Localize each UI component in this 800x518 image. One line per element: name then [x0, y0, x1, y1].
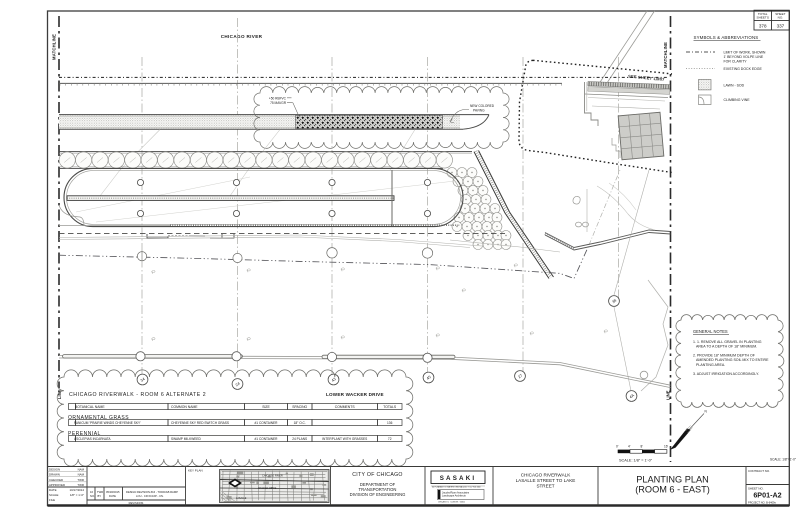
svg-text:EXISTING DOCK EDGE: EXISTING DOCK EDGE	[724, 67, 763, 71]
svg-text:CHEYENNE SKY RED SWITCH GRASS: CHEYENNE SKY RED SWITCH GRASS	[171, 421, 229, 425]
svg-text:COMMENTS: COMMENTS	[335, 405, 356, 409]
svg-text:18" O.C.: 18" O.C.	[294, 421, 306, 425]
svg-text:24 PLANS: 24 PLANS	[292, 437, 307, 441]
svg-text:16: 16	[90, 490, 93, 494]
svg-text:75 MAVGR: 75 MAVGR	[270, 101, 287, 105]
svg-text:SWAMP MILKWEED: SWAMP MILKWEED	[171, 437, 201, 441]
svg-text:136: 136	[387, 421, 393, 425]
svg-text:CLIMBING VINE: CLIMBING VINE	[724, 98, 751, 102]
svg-text:4': 4'	[628, 445, 631, 449]
svg-text:PANICUM 'PRAIRIE WINDS CHEYENN: PANICUM 'PRAIRIE WINDS CHEYENNE SKY'	[74, 421, 141, 425]
svg-text:72: 72	[388, 437, 392, 441]
svg-text:SYMBOLS & ABBREVIATIONS: SYMBOLS & ABBREVIATIONS	[694, 35, 759, 40]
svg-text:CITY OF CHICAGO: CITY OF CHICAGO	[352, 472, 403, 478]
svg-text:2. PROVIDE 18" MINIMUM DEPTH O: 2. PROVIDE 18" MINIMUM DEPTH OF	[693, 354, 756, 358]
svg-text:STREET: STREET	[536, 484, 554, 489]
svg-text:KEY PLAN: KEY PLAN	[188, 469, 203, 473]
svg-text:TWR: TWR	[77, 483, 84, 487]
svg-text:#1 CONTAINER: #1 CONTAINER	[255, 421, 279, 425]
svg-text:8': 8'	[641, 445, 644, 449]
svg-text:SCALE: 1/8" = 1'-0": SCALE: 1/8" = 1'-0"	[619, 459, 653, 463]
svg-text:NEW COLORED: NEW COLORED	[470, 104, 495, 108]
svg-text:DATE: DATE	[109, 494, 116, 498]
svg-text:CHICAGO RIVER: CHICAGO RIVER	[221, 34, 263, 39]
svg-text:16': 16'	[664, 445, 669, 449]
svg-text:1. 1. REMOVE ALL GRAVEL IN PLA: 1. 1. REMOVE ALL GRAVEL IN PLANTING	[693, 340, 762, 344]
svg-text:10/17/2014: 10/17/2014	[70, 488, 85, 492]
svg-text:6P01-A2: 6P01-A2	[753, 491, 781, 500]
svg-text:CHICAGO RIVERWALK - ROOM 6 ALT: CHICAGO RIVERWALK - ROOM 6 ALTERNATE 2	[69, 392, 206, 398]
svg-text:NAM: NAM	[78, 468, 85, 472]
svg-text:PLANTING PLAN: PLANTING PLAN	[636, 475, 709, 485]
svg-text:TWR: TWR	[77, 478, 84, 482]
svg-text:LOWER WACKER DRIVE: LOWER WACKER DRIVE	[326, 392, 384, 397]
svg-text:SHEETS: SHEETS	[757, 16, 769, 20]
svg-text:NO.: NO.	[90, 494, 95, 498]
svg-text:DRAWN: DRAWN	[49, 473, 60, 477]
svg-text:(ROOM 6 - EAST): (ROOM 6 - EAST)	[635, 485, 710, 495]
svg-text:CHICAGO IL ILLINOIS 60611: CHICAGO IL ILLINOIS 60611	[438, 500, 465, 503]
svg-text:MATCHLINE: MATCHLINE	[663, 42, 668, 68]
svg-text:1' BEYOND VOLPE LINE: 1' BEYOND VOLPE LINE	[724, 55, 764, 59]
svg-text:PROJECT NO. B-6409s: PROJECT NO. B-6409s	[748, 501, 776, 505]
svg-text:LOU - CR 6C16P - CN.: LOU - CR 6C16P - CN.	[136, 494, 164, 498]
svg-text:LIMIT OF WORK, SHOWN: LIMIT OF WORK, SHOWN	[724, 50, 766, 54]
svg-text:FOR CLARITY: FOR CLARITY	[724, 60, 748, 64]
svg-text:TWR: TWR	[97, 490, 103, 494]
svg-text:INTERPLANT WITH GRASSES: INTERPLANT WITH GRASSES	[322, 437, 367, 441]
svg-text:REVISIONS: REVISIONS	[129, 501, 144, 505]
svg-text:TOTALS: TOTALS	[383, 405, 397, 409]
svg-text:CHICAGO RIVER: CHICAGO RIVER	[262, 474, 283, 478]
svg-text:WACKER DRIVE: WACKER DRIVE	[258, 487, 277, 490]
svg-text:0': 0'	[616, 445, 619, 449]
svg-text:DIVISION OF ENGINEERING: DIVISION OF ENGINEERING	[350, 492, 406, 497]
svg-text:NO.: NO.	[778, 16, 784, 20]
svg-text:3. ADJUST IRRIGATION ACCORDING: 3. ADJUST IRRIGATION ACCORDINGLY.	[693, 372, 759, 376]
svg-text:337: 337	[777, 24, 785, 29]
svg-text:SCALE: SCALE	[49, 493, 59, 497]
svg-text:MATCHLINE: MATCHLINE	[52, 34, 57, 60]
svg-text:Landscape Architects: Landscape Architects	[442, 495, 467, 498]
svg-text:CONTRACT NO.: CONTRACT NO.	[748, 469, 770, 473]
svg-text:+50 RBFVC: +50 RBFVC	[269, 96, 287, 100]
svg-text:1/8" = 1'-0": 1/8" = 1'-0"	[70, 493, 84, 497]
svg-text:CHECKED: CHECKED	[49, 478, 63, 482]
svg-text:LAWN - SOD: LAWN - SOD	[724, 83, 745, 87]
svg-text:378: 378	[759, 24, 767, 29]
svg-text:APPROVED: APPROVED	[49, 483, 65, 487]
svg-text:DESIGN: DESIGN	[49, 468, 60, 472]
svg-text:SASAKI: SASAKI	[440, 475, 477, 482]
svg-text:CHICAGO RIVERWALK: CHICAGO RIVERWALK	[521, 473, 571, 478]
svg-text:NAM: NAM	[78, 473, 85, 477]
svg-text:64 PLEASANT ST WATERTOWN MA 02: 64 PLEASANT ST WATERTOWN MA 02472 T 617 …	[432, 485, 480, 488]
svg-text:BOTANICAL NAME: BOTANICAL NAME	[75, 405, 105, 409]
svg-text:DESIGN REVISION #16 - TODD/AB: DESIGN REVISION #16 - TODD/AB RAMP	[126, 490, 178, 494]
svg-text:COMMON NAME: COMMON NAME	[171, 405, 198, 409]
svg-text:AMENDED PLANTING SOIL MIX TO E: AMENDED PLANTING SOIL MIX TO ENTIRE	[696, 358, 769, 362]
svg-text:PAVING: PAVING	[473, 108, 485, 112]
svg-text:PLANTING AREA.: PLANTING AREA.	[696, 363, 725, 367]
svg-text:LASALLE: LASALLE	[236, 497, 247, 500]
svg-text:FILE: FILE	[49, 498, 55, 502]
svg-text:05/18/2015: 05/18/2015	[106, 490, 120, 494]
svg-text:#1 CONTAINER: #1 CONTAINER	[255, 437, 279, 441]
svg-text:BY: BY	[98, 494, 102, 498]
svg-text:LINE: LINE	[666, 390, 671, 400]
svg-text:SCALE: 1/8"=1'-0": SCALE: 1/8"=1'-0"	[770, 458, 796, 462]
svg-text:AREA TO A DEPTH OF 18" MINIMUM: AREA TO A DEPTH OF 18" MINIMUM.	[696, 345, 757, 349]
svg-text:DATE: DATE	[49, 488, 57, 492]
svg-text:LASALLE STREET TO LAKE: LASALLE STREET TO LAKE	[516, 478, 576, 483]
svg-text:SPACING: SPACING	[292, 405, 307, 409]
svg-text:SIZE: SIZE	[262, 405, 270, 409]
svg-text:ASCLEPIAS INCARNATA: ASCLEPIAS INCARNATA	[74, 437, 111, 441]
svg-text:GENERAL NOTES: GENERAL NOTES	[693, 329, 728, 334]
